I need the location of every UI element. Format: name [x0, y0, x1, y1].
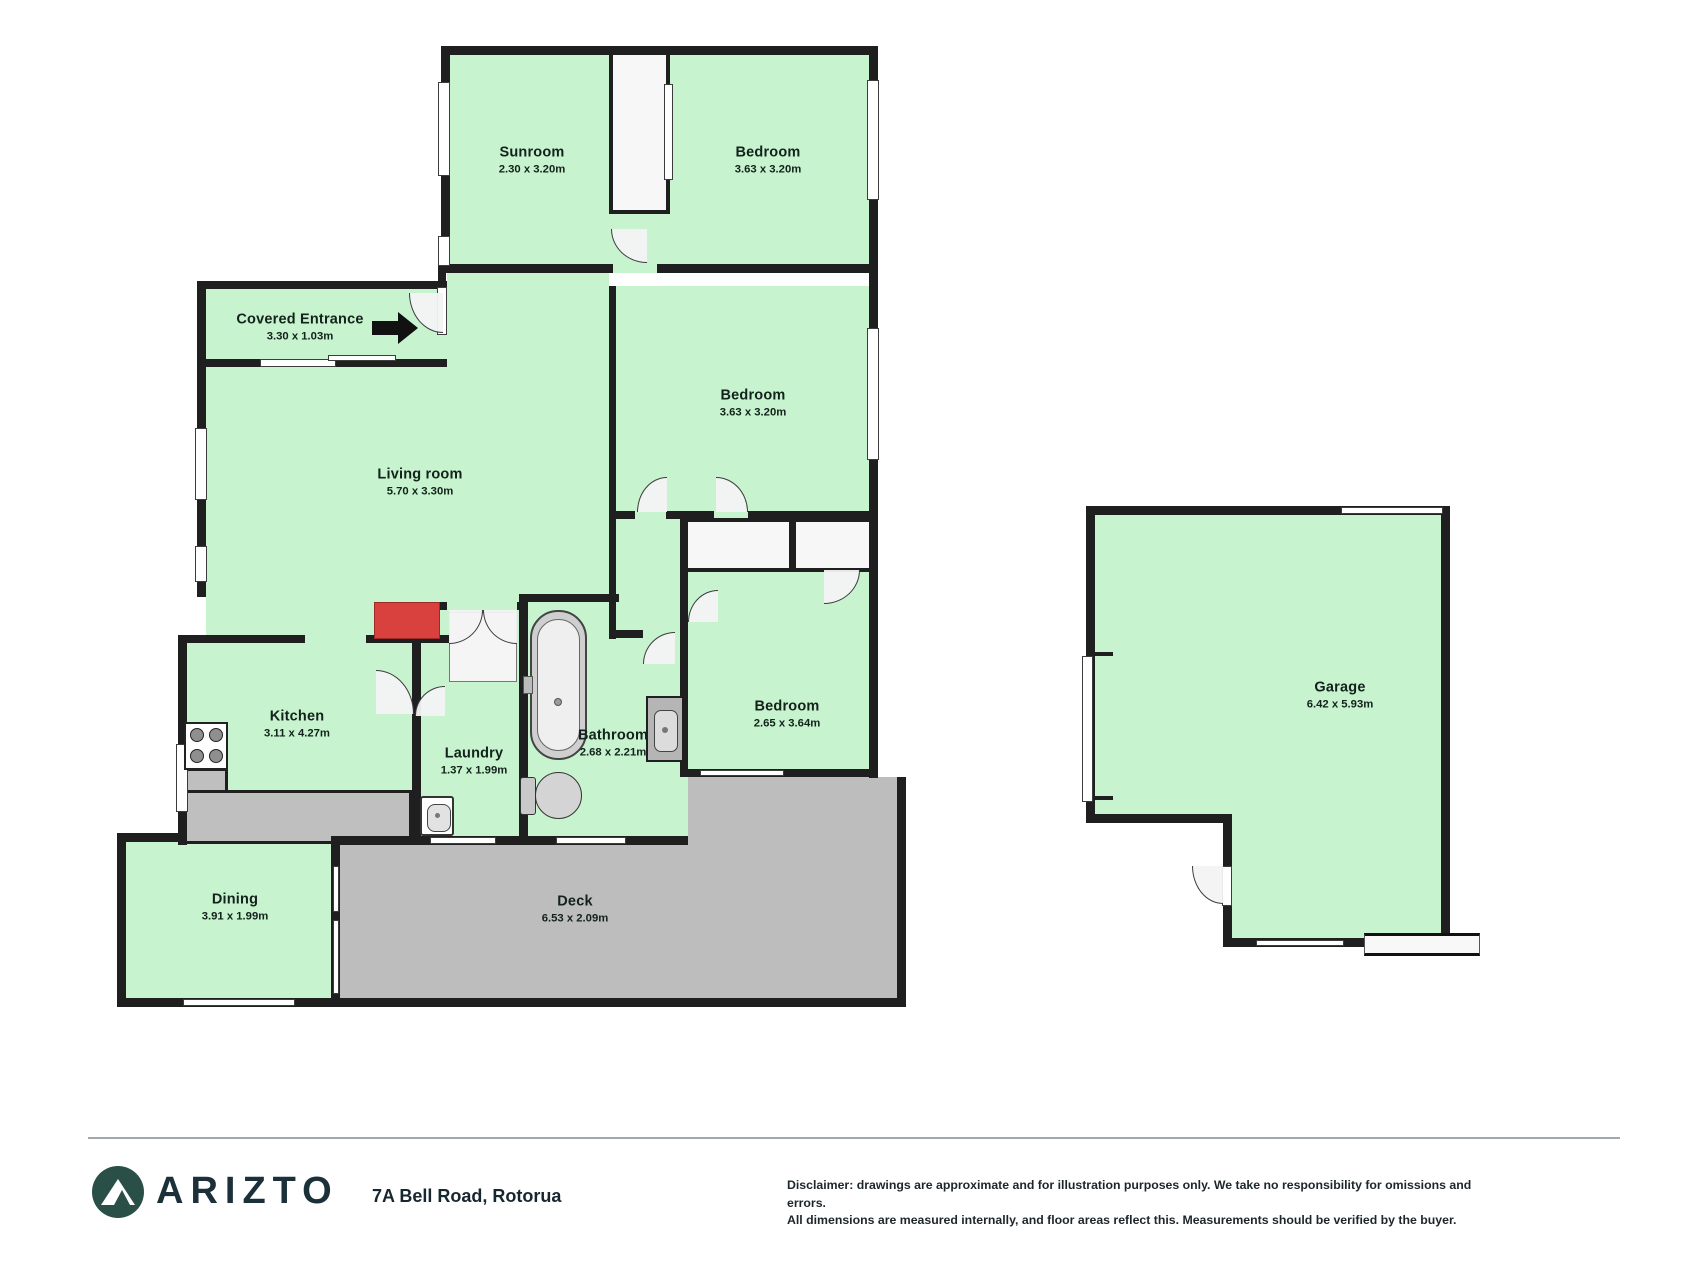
- wall: [609, 286, 616, 520]
- room-label-bedroom3: Bedroom 2.65 x 3.64m: [754, 699, 821, 730]
- entrance-arrow-icon: [372, 312, 420, 344]
- wall: [657, 264, 878, 273]
- window: [183, 999, 295, 1006]
- room-floor: [1231, 814, 1441, 938]
- room-label-bedroom2: Bedroom 3.63 x 3.20m: [720, 388, 787, 419]
- wall: [117, 833, 126, 1007]
- wall: [609, 630, 643, 638]
- wall: [117, 833, 187, 842]
- wall: [517, 602, 528, 610]
- window: [1222, 866, 1232, 906]
- wall: [1086, 814, 1232, 823]
- wall: [197, 281, 206, 369]
- room-label-deck: Deck 6.53 x 2.09m: [542, 894, 609, 925]
- garage-door: [1364, 933, 1480, 956]
- window: [438, 82, 450, 176]
- room-floor: [447, 273, 609, 373]
- window: [438, 236, 450, 266]
- hall-closet-right: [792, 518, 876, 572]
- room-label-sunroom: Sunroom 2.30 x 3.20m: [499, 145, 566, 176]
- window: [867, 328, 879, 460]
- wall: [1223, 814, 1232, 870]
- bathtub-faucet-icon: [523, 676, 533, 694]
- closet-top-wing: [609, 46, 670, 214]
- window: [195, 546, 207, 582]
- room-label-living-room: Living room 5.70 x 3.30m: [377, 467, 462, 498]
- toilet-icon: [520, 777, 536, 815]
- room-label-laundry: Laundry 1.37 x 1.99m: [441, 746, 508, 777]
- wall: [441, 264, 613, 273]
- window: [333, 866, 339, 912]
- window: [1256, 940, 1344, 946]
- window: [328, 355, 396, 361]
- window: [1341, 507, 1443, 514]
- brand-name: ARIZTO: [156, 1170, 339, 1213]
- wall: [438, 264, 446, 289]
- deck-floor: [688, 777, 897, 1000]
- wall: [1441, 506, 1450, 947]
- window: [430, 837, 496, 844]
- window: [195, 428, 207, 500]
- wall: [441, 46, 878, 55]
- wall: [609, 511, 635, 519]
- door-arc-garage: [1192, 866, 1223, 904]
- deck-floor: [339, 843, 688, 1000]
- fireplace-unit: [374, 602, 440, 639]
- arizto-logo: [92, 1166, 144, 1218]
- room-label-bathroom: Bathroom 2.68 x 2.21m: [578, 728, 648, 759]
- room-label-kitchen: Kitchen 3.11 x 4.27m: [264, 709, 330, 740]
- window: [260, 359, 336, 367]
- wall: [178, 635, 305, 643]
- room-label-bedroom1: Bedroom 3.63 x 3.20m: [735, 145, 802, 176]
- window: [333, 920, 339, 994]
- wall: [748, 511, 878, 519]
- wall: [331, 836, 416, 845]
- wall: [609, 520, 616, 639]
- wall: [1095, 652, 1113, 656]
- wall: [666, 511, 714, 519]
- footer-divider: [88, 1137, 1620, 1139]
- room-floor: [1094, 514, 1441, 814]
- stove-icon: [184, 722, 228, 770]
- window: [1082, 656, 1093, 802]
- floorplan-page: Sunroom 2.30 x 3.20m Bedroom 3.63 x 3.20…: [0, 0, 1707, 1280]
- hall-closet-left: [680, 518, 793, 572]
- room-label-dining: Dining 3.91 x 1.99m: [202, 892, 269, 923]
- property-address: 7A Bell Road, Rotorua: [372, 1186, 561, 1207]
- window: [700, 770, 784, 776]
- bathroom-sink-icon: [646, 696, 684, 762]
- wall: [1095, 796, 1113, 800]
- room-label-garage: Garage 6.42 x 5.93m: [1307, 680, 1374, 711]
- wall: [519, 594, 619, 602]
- wall: [197, 281, 447, 289]
- laundry-tub-icon: [420, 796, 454, 836]
- window: [556, 837, 626, 844]
- wall: [897, 777, 906, 1007]
- window: [867, 80, 879, 200]
- wall: [331, 998, 906, 1007]
- window: [664, 84, 673, 180]
- disclaimer-text: Disclaimer: drawings are approximate and…: [787, 1177, 1503, 1230]
- room-label-covered-entrance: Covered Entrance 3.30 x 1.03m: [236, 312, 363, 343]
